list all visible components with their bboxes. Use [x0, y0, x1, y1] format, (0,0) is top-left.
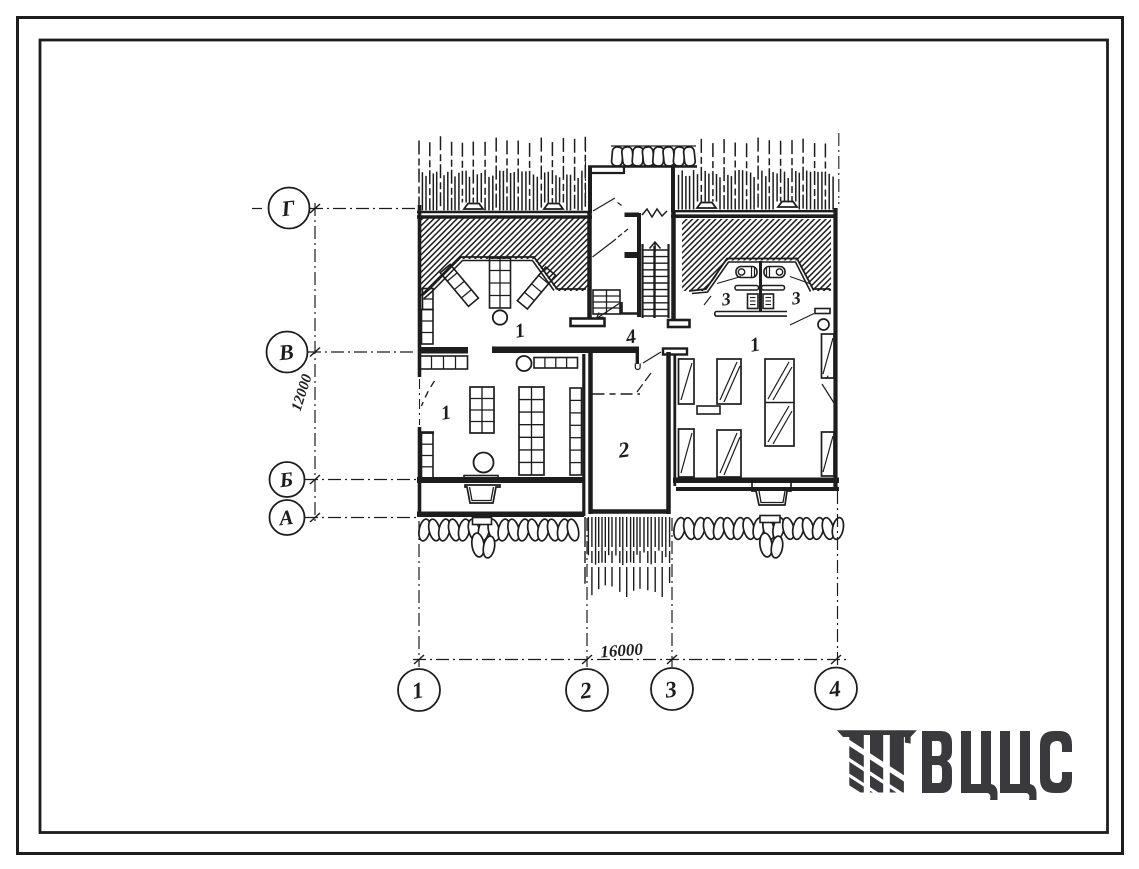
- svg-text:Б: Б: [277, 467, 294, 492]
- svg-text:В: В: [277, 339, 295, 366]
- svg-text:16000: 16000: [600, 640, 644, 662]
